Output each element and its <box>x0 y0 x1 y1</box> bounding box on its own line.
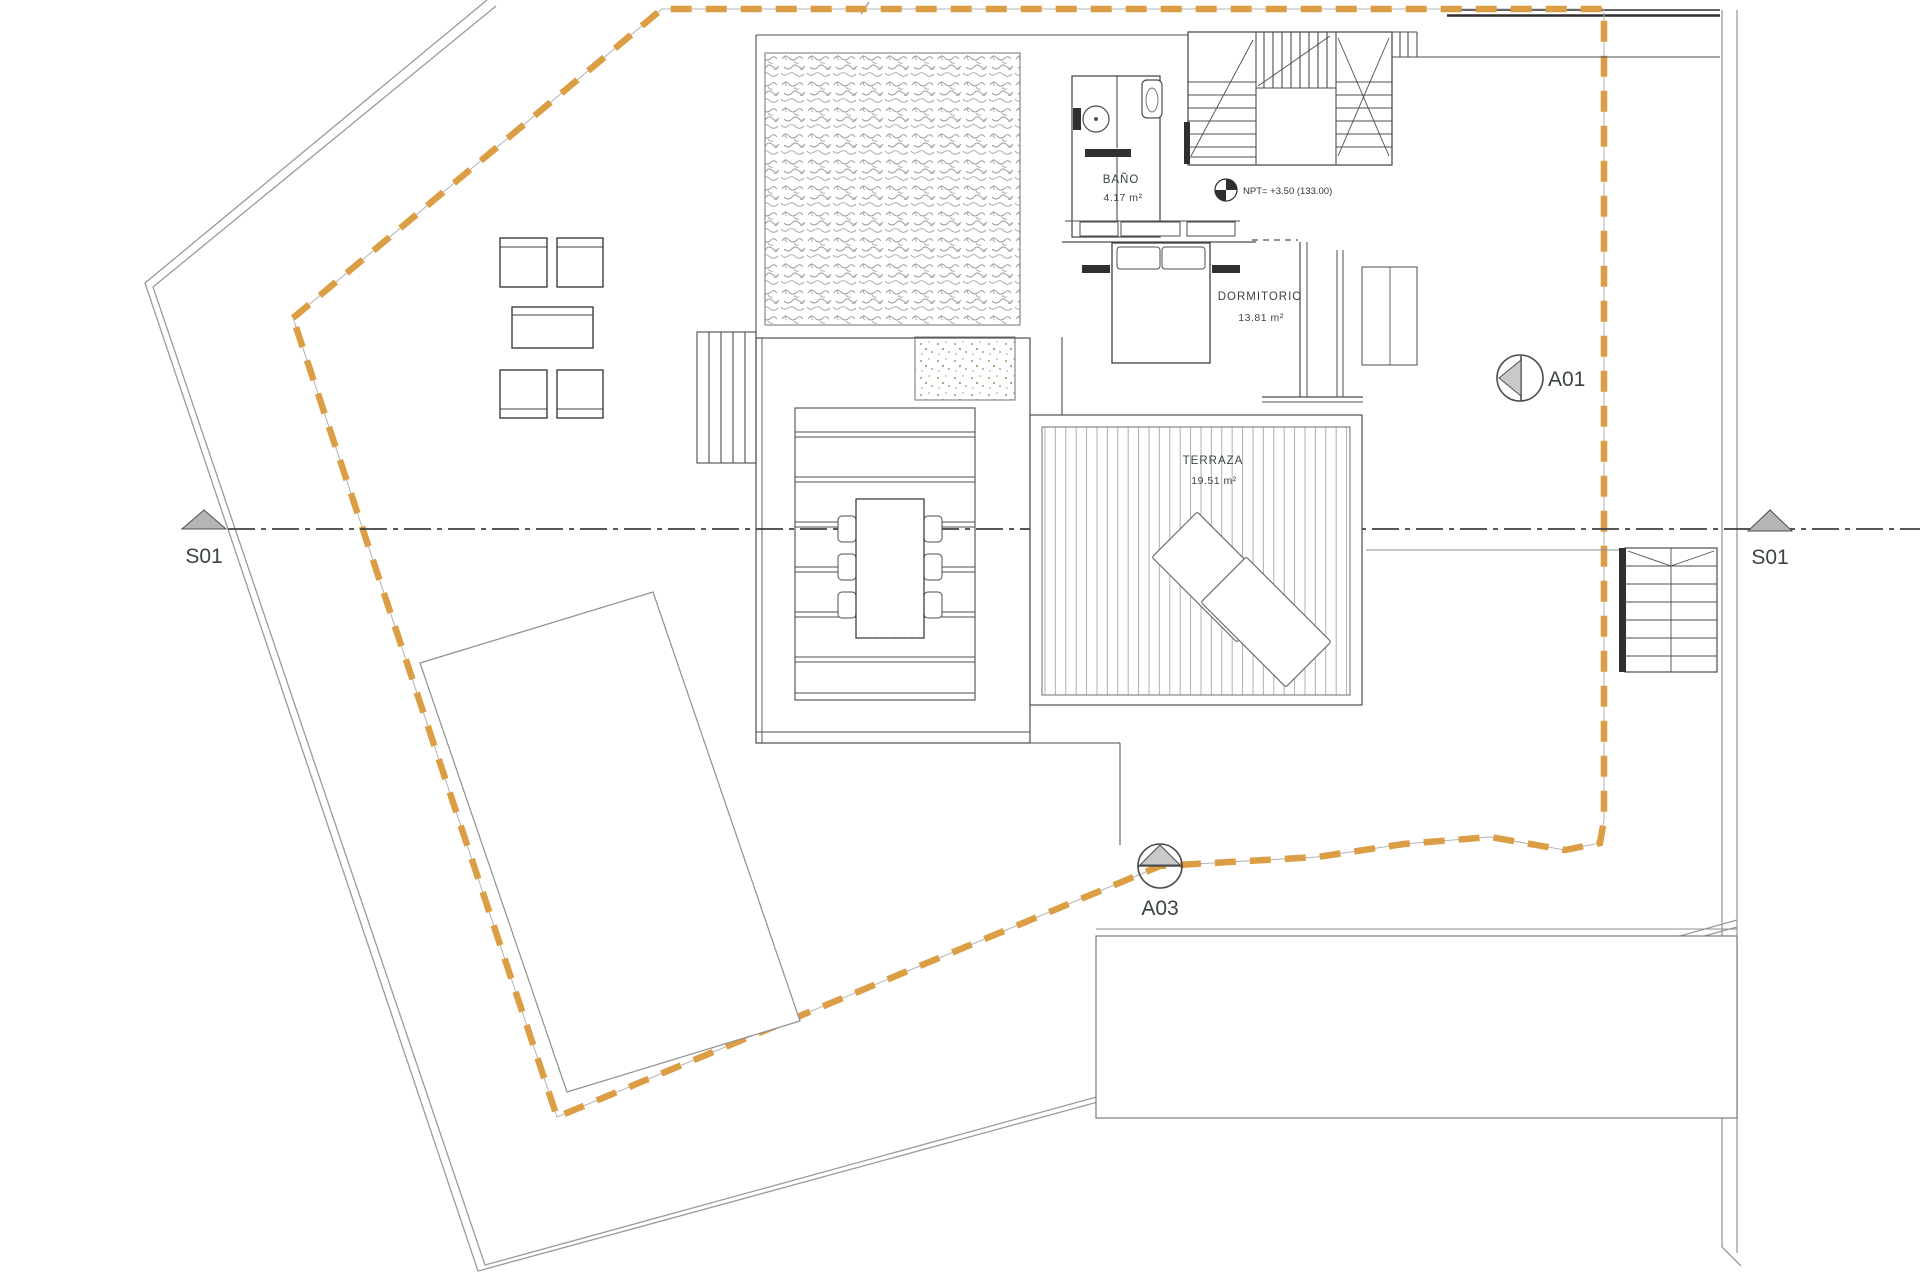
terrace-label: TERRAZA <box>1183 455 1244 467</box>
floor-plan-drawing: BAÑO 4.17 m² NPT= +3.50 (133.00) <box>0 0 1920 1280</box>
chair <box>838 516 856 542</box>
pillow <box>1162 247 1205 269</box>
view-direction-icon <box>1499 360 1521 396</box>
terrace-area: 19.51 m² <box>1191 475 1236 487</box>
gravel-area <box>765 53 1020 325</box>
lounge-chair <box>557 370 603 418</box>
staircase-main <box>1184 32 1392 165</box>
chair <box>924 516 942 542</box>
dining-table <box>856 499 924 638</box>
chair <box>838 592 856 618</box>
dining-set <box>838 499 942 638</box>
level-marker-text: NPT= +3.50 (133.00) <box>1243 186 1332 197</box>
lounge-set <box>500 238 603 418</box>
bedroom-area: 13.81 m² <box>1238 312 1283 324</box>
chair <box>838 554 856 580</box>
nightstand <box>1212 265 1240 273</box>
chair <box>924 592 942 618</box>
staircase-right <box>1619 548 1717 672</box>
section-marker-label: S01 <box>185 545 222 568</box>
section-marker-s01-left: S01 <box>182 510 226 568</box>
lounge-chair <box>500 238 547 287</box>
terrace-deck: TERRAZA 19.51 m² <box>1030 415 1362 705</box>
chair <box>924 554 942 580</box>
pool-outline <box>420 592 800 1092</box>
view-marker-a03: A03 <box>1137 844 1183 920</box>
view-marker-label: A03 <box>1141 897 1178 920</box>
lounge-chair <box>500 370 547 418</box>
section-triangle-icon <box>182 510 226 529</box>
lower-annex <box>1096 929 1737 1118</box>
toilet-tank <box>1073 108 1081 130</box>
section-marker-label: S01 <box>1751 546 1788 569</box>
bathroom-label: BAÑO <box>1103 173 1140 186</box>
view-direction-icon <box>1140 845 1180 865</box>
section-triangle-icon <box>1748 510 1792 531</box>
nightstand <box>1082 265 1110 273</box>
bathroom-area: 4.17 m² <box>1103 192 1142 204</box>
lounge-chair <box>557 238 603 287</box>
level-marker: NPT= +3.50 (133.00) <box>1215 179 1332 201</box>
floor-plan-canvas: BAÑO 4.17 m² NPT= +3.50 (133.00) <box>0 0 1920 1280</box>
property-boundary-corner-jog <box>1722 1247 1741 1266</box>
pillow <box>1117 247 1160 269</box>
planting-area <box>915 337 1015 400</box>
closet <box>1362 267 1417 365</box>
view-marker-a01: A01 <box>1497 355 1585 401</box>
coffee-table <box>512 307 593 348</box>
door-lintel <box>1085 149 1131 157</box>
bedroom: DORMITORIO 13.81 m² <box>1062 221 1417 402</box>
section-marker-s01-right: S01 <box>1748 510 1792 569</box>
staircase-side <box>697 332 756 463</box>
bedroom-label: DORMITORIO <box>1218 291 1303 303</box>
bathroom: BAÑO 4.17 m² <box>1072 76 1162 237</box>
view-marker-label: A01 <box>1548 368 1585 391</box>
